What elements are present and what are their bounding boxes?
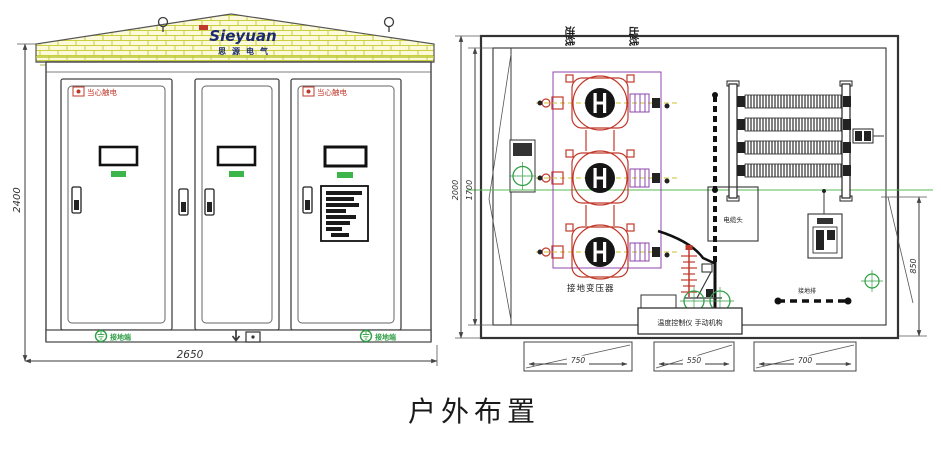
height-dimension: 2400 [12, 44, 38, 361]
left-bushing-device [509, 140, 536, 192]
resistor-element-4 [737, 164, 851, 177]
transformer-label: 接地变压器 [567, 283, 615, 294]
door2-hinge-handle[interactable] [179, 189, 188, 215]
roof: Sieyuan 思源电气 [36, 14, 434, 65]
brand-logo-text: Sieyuan [209, 27, 276, 45]
width-dimension: 2650 [25, 345, 437, 366]
door3-nameplate [321, 186, 368, 241]
cable-head-label: 电缆头 [723, 215, 743, 224]
door1-handle[interactable] [72, 187, 81, 213]
door2-handle[interactable] [205, 189, 214, 215]
bottom-dimension-2: 550 [654, 342, 734, 371]
plan-view: 进线 出线 接地变压器 [451, 26, 933, 371]
lifting-eye-right-icon [385, 18, 394, 33]
dim-2400: 2400 [12, 187, 23, 212]
drawing-title: 户外布置 [408, 395, 540, 428]
ground-busbar-label: 接地排 [798, 287, 816, 295]
brand-logo-subtext: 思源电气 [218, 46, 274, 56]
front-elevation-view: 2400 Sieyuan 思源电气 [12, 14, 437, 366]
door-3: 当心触电 [291, 79, 401, 330]
inlet-cable-label: 进线 [563, 26, 576, 46]
control-box-label: 温度控制仪 手动机构 [657, 318, 722, 327]
technical-drawing: 2400 Sieyuan 思源电气 [0, 0, 941, 456]
dim-700: 700 [798, 356, 813, 365]
resistor-element-2 [737, 118, 851, 131]
dim-1700: 1700 [465, 180, 474, 200]
warning-label-door3: 当心触电 [303, 87, 347, 97]
drawing-canvas: 2400 Sieyuan 思源电气 [0, 0, 941, 456]
ground-label-left: 接地端 [110, 333, 131, 342]
outlet-cable-label: 出线 [627, 26, 640, 46]
dim-550: 550 [687, 356, 702, 365]
dim-750: 750 [571, 356, 586, 365]
dim-2650: 2650 [177, 349, 204, 361]
warning-text-door1: 当心触电 [87, 87, 117, 97]
resistor-element-1 [737, 95, 851, 108]
ground-label-right: 接地端 [375, 333, 396, 342]
dim-2000: 2000 [451, 180, 460, 200]
door-1: 当心触电 [61, 79, 172, 330]
drain-arrow-icon [233, 331, 261, 343]
warning-text-door3: 当心触电 [317, 87, 347, 97]
warning-label-door1: 当心触电 [73, 87, 117, 97]
cabinet-base: 接地端 接地端 [46, 330, 431, 342]
door3-handle[interactable] [303, 187, 312, 213]
dim-850: 850 [909, 258, 918, 273]
bottom-dimension-3: 700 [754, 342, 856, 371]
bottom-dimension-1: 750 [524, 342, 632, 371]
resistor-element-3 [737, 141, 851, 154]
